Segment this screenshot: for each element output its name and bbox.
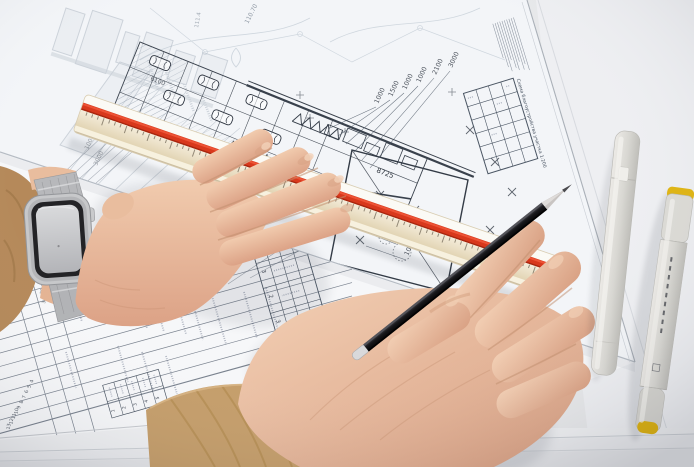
scene-canvas: 4 5 6 7 8 9 10 11 12 13 35 6.84 4.50 102… (0, 0, 694, 467)
photo-vignette (0, 0, 694, 467)
photo-desk-scene: 4 5 6 7 8 9 10 11 12 13 35 6.84 4.50 102… (0, 0, 694, 467)
